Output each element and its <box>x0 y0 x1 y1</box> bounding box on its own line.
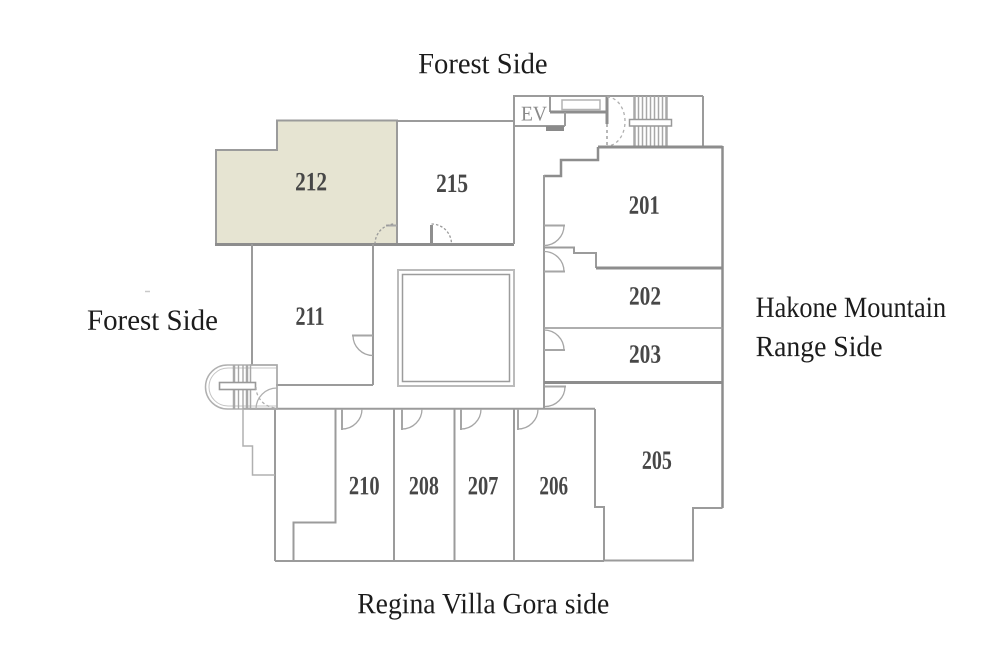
svg-text:201: 201 <box>629 190 660 220</box>
svg-text:Regina Villa Gora side: Regina Villa Gora side <box>357 588 609 620</box>
svg-text:203: 203 <box>629 339 661 369</box>
svg-text:202: 202 <box>629 281 661 311</box>
svg-text:Forest Side: Forest Side <box>87 305 218 337</box>
svg-text:212: 212 <box>295 166 327 196</box>
svg-text:205: 205 <box>642 445 672 475</box>
svg-text:210: 210 <box>349 470 380 500</box>
svg-text:208: 208 <box>409 470 439 500</box>
svg-text:206: 206 <box>539 470 568 500</box>
svg-text:211: 211 <box>295 301 324 331</box>
svg-text:215: 215 <box>436 168 468 198</box>
svg-text:207: 207 <box>468 470 499 500</box>
svg-text:EV: EV <box>521 101 547 125</box>
svg-text:Range Side: Range Side <box>756 331 883 363</box>
svg-text:Hakone Mountain: Hakone Mountain <box>756 292 947 324</box>
svg-text:Forest Side: Forest Side <box>418 48 548 80</box>
